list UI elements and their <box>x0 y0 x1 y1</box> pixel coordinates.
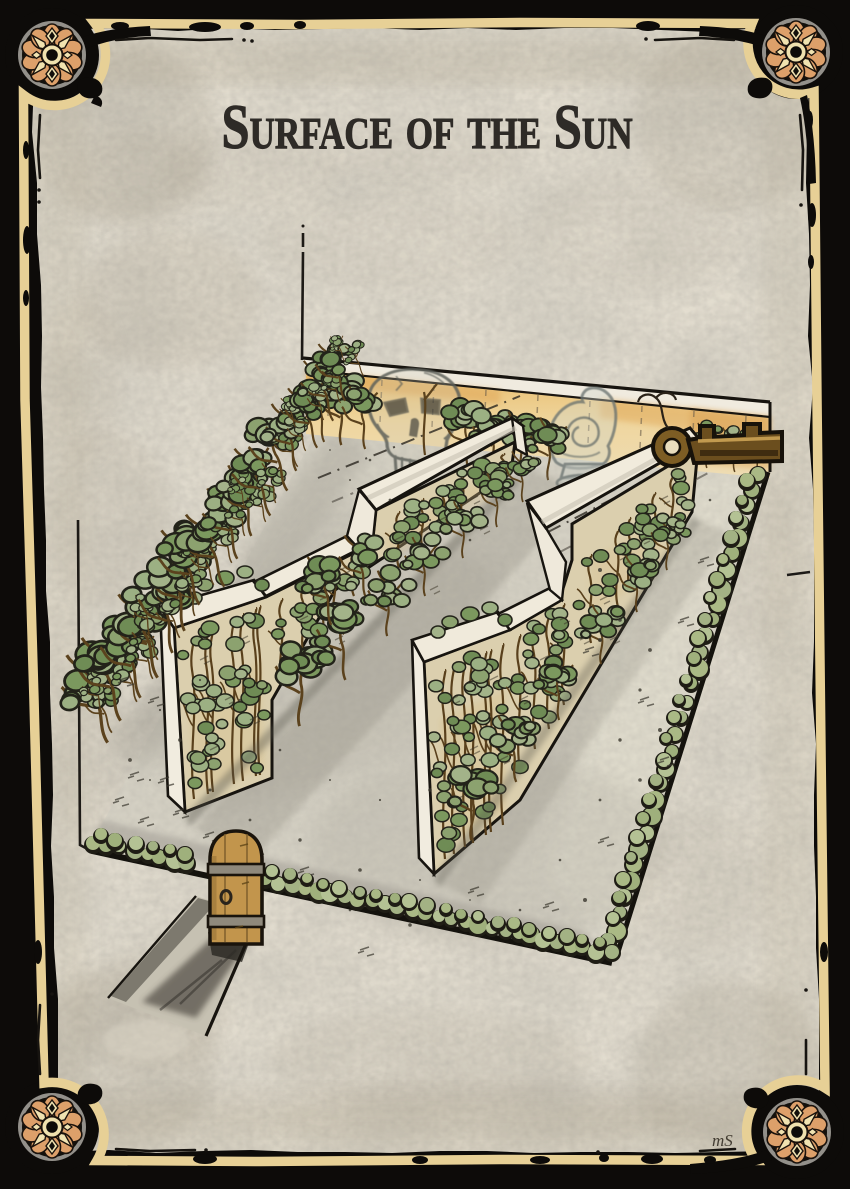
svg-text:Surface of the Sun: Surface of the Sun <box>221 93 632 163</box>
svg-text:mS: mS <box>712 1131 733 1150</box>
